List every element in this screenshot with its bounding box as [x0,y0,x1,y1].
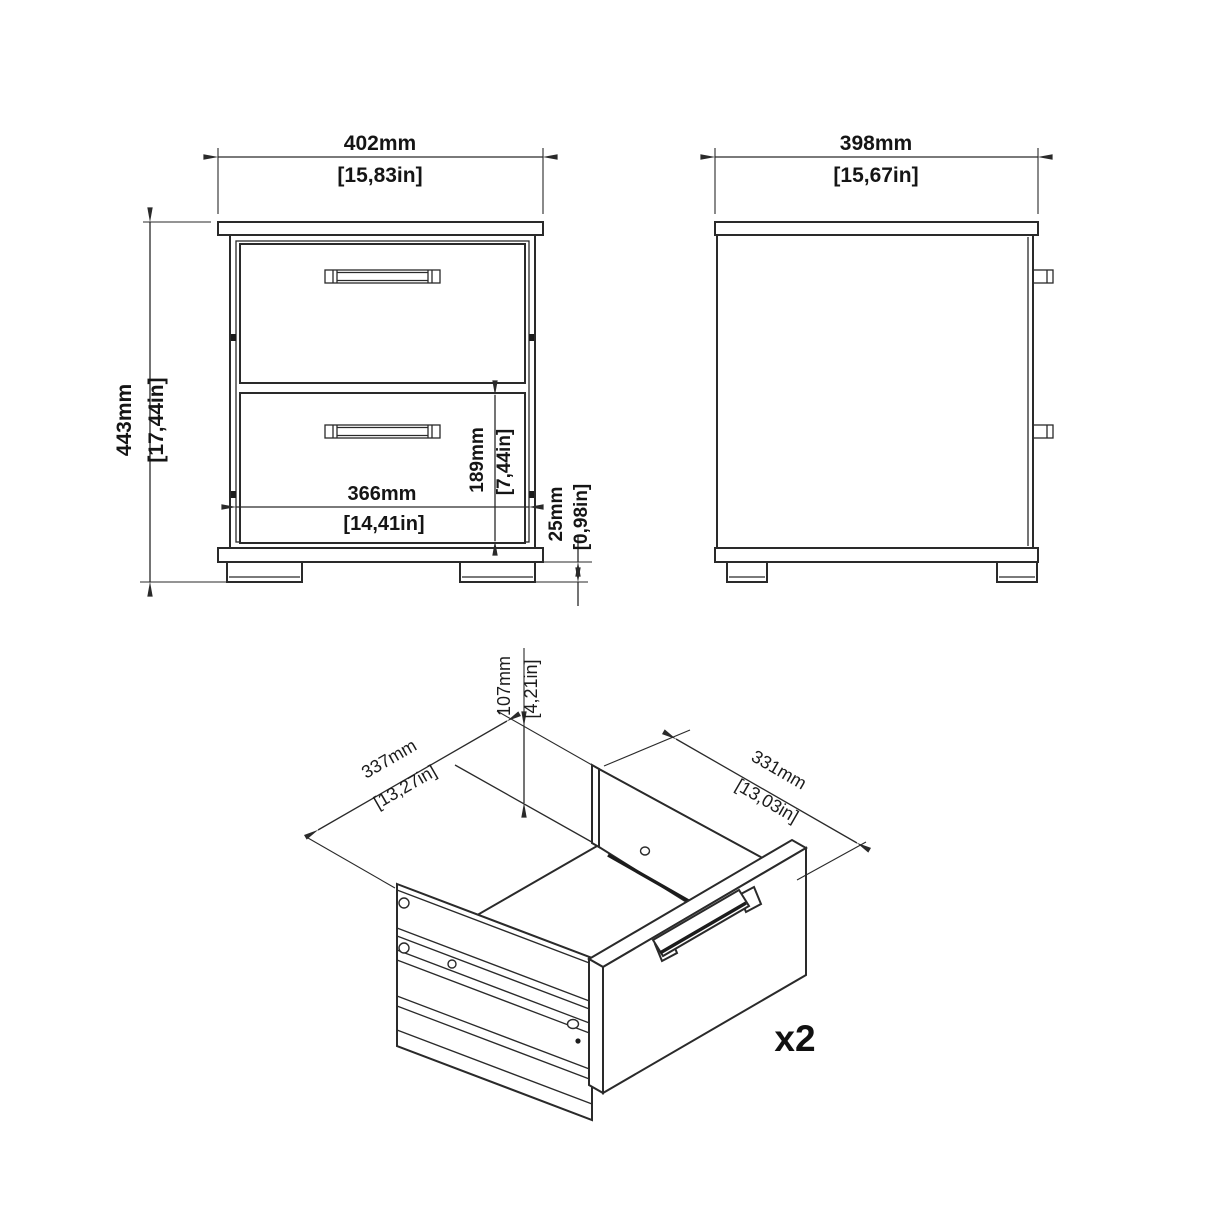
side-depth-dimension: 398mm [15,67in] [715,132,1038,214]
front-view: 402mm [15,83in] 443mm [17,44in] 366mm [1… [113,132,592,606]
front-top-panel [218,222,543,235]
drawer-height-mm-label: 189mm [467,427,488,493]
quantity-label: x2 [774,1018,815,1059]
front-right-foot [460,562,535,582]
foot-height-mm-label: 25mm [546,487,567,542]
screw-dot [575,1038,580,1043]
foot-height-dimension: 25mm [0,98in] [543,484,592,606]
drawer-width-in-label: [14,41in] [343,513,424,535]
screw-hole [448,960,456,968]
screw-hole [399,943,409,953]
cam-tick [529,491,534,498]
front-width-in-label: [15,83in] [337,164,422,187]
front-height-dimension: 443mm [17,44in] [113,222,211,582]
screw-hole [641,847,650,855]
front-plinth [218,548,543,562]
side-plinth [715,548,1038,562]
front-height-mm-label: 443mm [113,384,136,456]
cam-tick [231,491,236,498]
front-left-foot [227,562,302,582]
foot-height-in-label: [0,98in] [571,484,592,551]
cam-tick [231,334,236,341]
drawer-height-in-label: [7,44in] [494,429,515,496]
drawer-height-mm-label: 107mm [494,656,514,716]
technical-drawing: 402mm [15,83in] 443mm [17,44in] 366mm [1… [0,0,1214,1214]
front-width-dimension: 402mm [15,83in] [218,132,543,214]
drawer-height-dimension-iso: 107mm [4,21in] [494,648,541,803]
assembly-instruction-page: 402mm [15,83in] 443mm [17,44in] 366mm [1… [0,0,1214,1214]
drawer-width-mm-label: 366mm [348,483,417,505]
side-front-foot [727,562,767,582]
drawer-side-panel-right-edge [592,765,599,847]
cam-tick [529,334,534,341]
screw-hole [568,1020,579,1029]
drawer-back-edge [455,765,597,845]
screw-hole [399,898,409,908]
side-top-panel [715,222,1038,235]
side-depth-mm-label: 398mm [840,132,912,155]
side-lower-handle-profile [1033,425,1053,438]
side-body [717,235,1033,548]
front-width-mm-label: 402mm [344,132,416,155]
side-back-foot [997,562,1037,582]
side-view: 398mm [15,67in] [715,132,1053,582]
front-height-in-label: [17,44in] [145,377,168,462]
drawer-isometric-view: 337mm [13,27in] 331mm [13,03in] 107mm [4… [308,648,866,1120]
drawer-height-in-label: [4,21in] [521,659,541,718]
side-depth-in-label: [15,67in] [833,164,918,187]
side-upper-handle-profile [1033,270,1053,283]
front-upper-drawer [240,244,525,383]
drawer-depth-dimension: 337mm [13,27in] [308,711,599,888]
